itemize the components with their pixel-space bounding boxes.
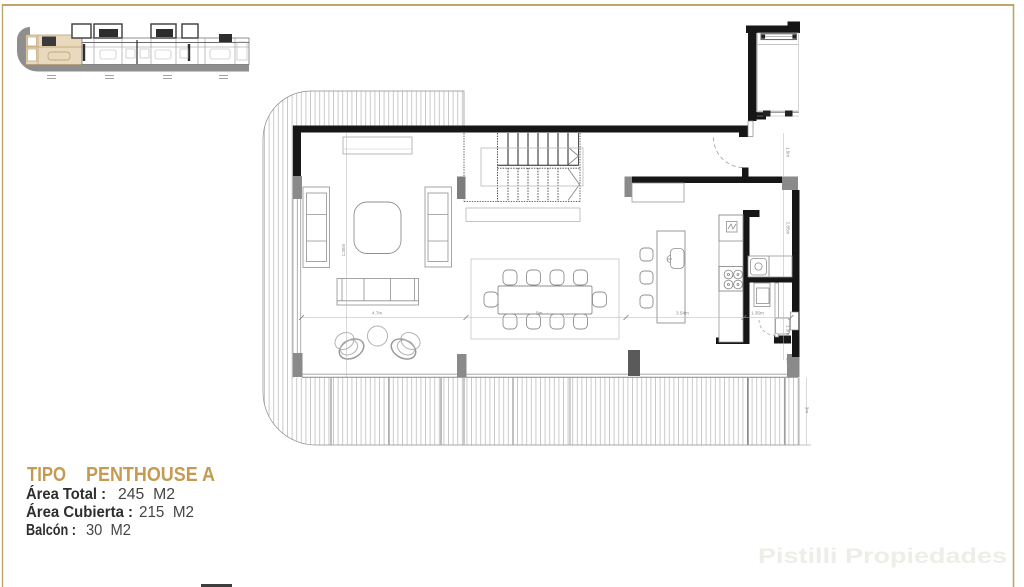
svg-text:2.85m: 2.85m [786,222,791,235]
svg-text:1m: 1m [786,358,791,365]
svg-text:Área Cubierta :: Área Cubierta : [26,504,133,521]
svg-text:1.5m: 1.5m [786,147,791,157]
svg-text:Balcón :: Balcón : [26,522,76,539]
svg-text:3m: 3m [805,407,810,414]
svg-text:30 M2: 30 M2 [86,522,131,539]
svg-text:5m: 5m [536,311,543,316]
svg-text:PENTHOUSE A: PENTHOUSE A [86,464,215,486]
svg-text:4.7m: 4.7m [372,311,382,316]
svg-text:3.54m: 3.54m [676,311,689,316]
svg-text:245 M2: 245 M2 [118,486,175,503]
svg-text:1.35m: 1.35m [751,311,764,316]
svg-text:1.35m: 1.35m [341,243,346,256]
svg-text:TIPO: TIPO [27,464,66,486]
svg-text:Pistilli Propiedades: Pistilli Propiedades [758,544,1007,568]
svg-text:Área Total :: Área Total : [26,486,106,503]
svg-text:215 M2: 215 M2 [139,504,194,521]
svg-text:1.3m: 1.3m [786,325,791,335]
